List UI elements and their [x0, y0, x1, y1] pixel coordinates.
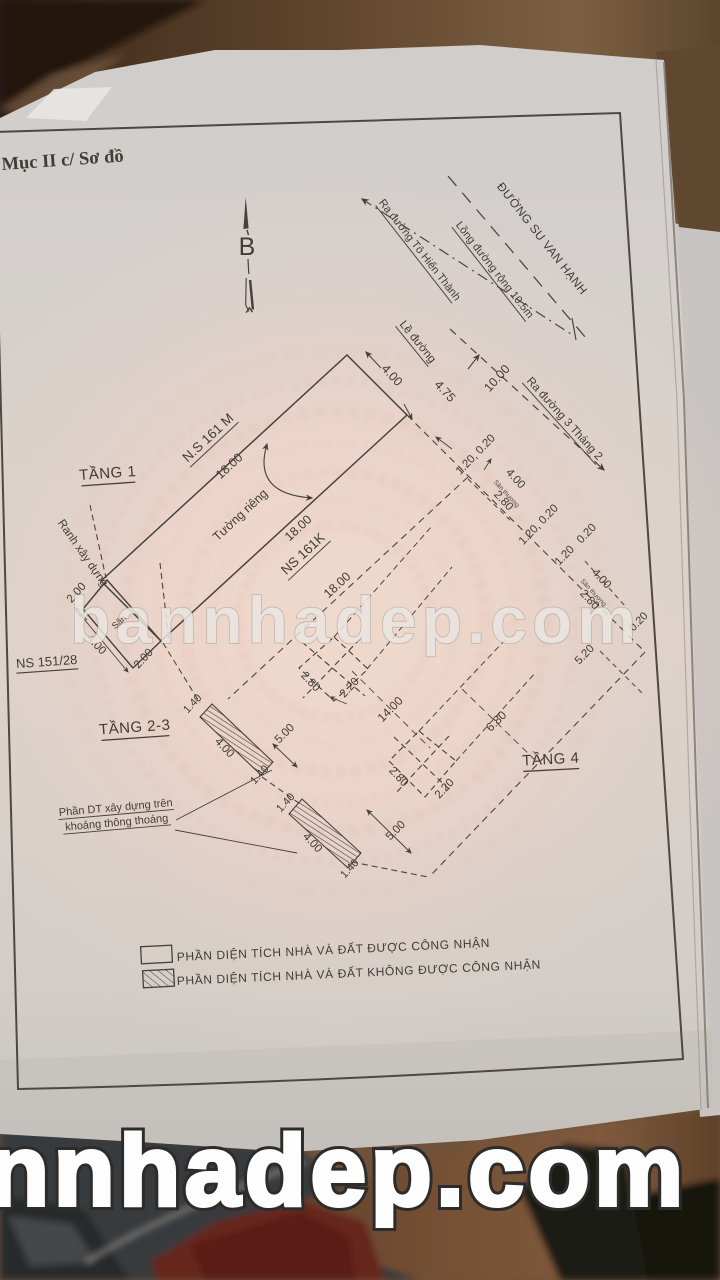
svg-text:TẦNG 4: TẦNG 4: [522, 750, 580, 770]
svg-text:bannhadep.com: bannhadep.com: [70, 583, 641, 657]
svg-text:B: B: [239, 233, 256, 261]
svg-text:nnhadep.com: nnhadep.com: [0, 1115, 688, 1227]
